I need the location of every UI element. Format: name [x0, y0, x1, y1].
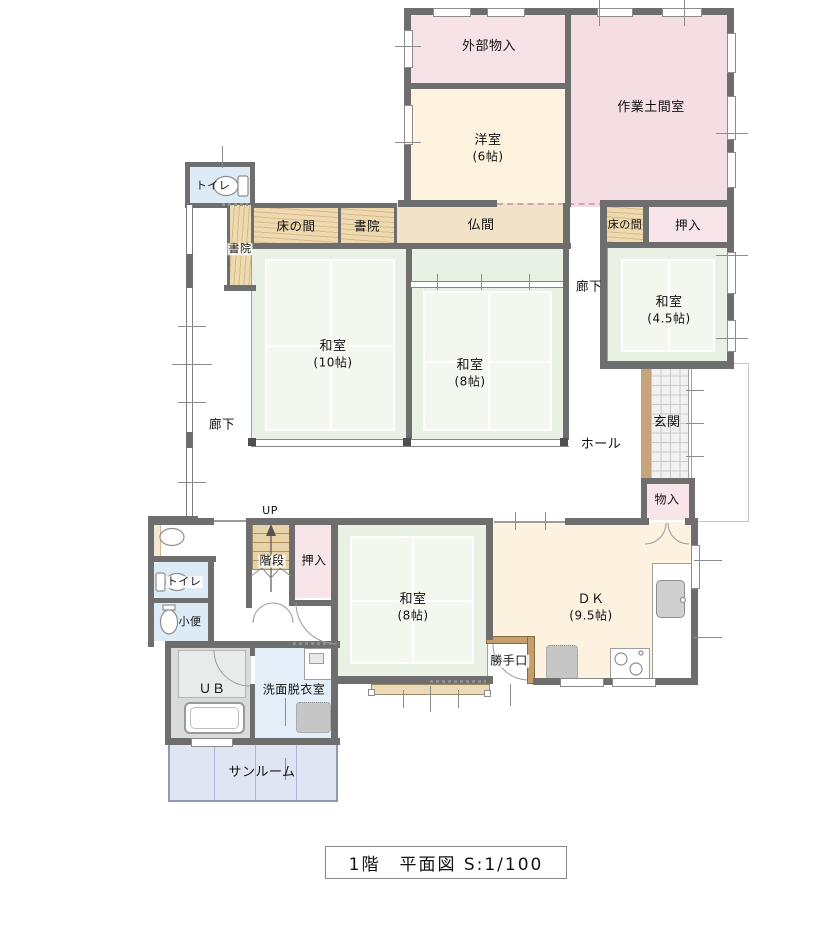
room-label-washitsu-8-center: 和室: [456, 359, 483, 373]
corridor-window-wall: [186, 205, 193, 518]
window: [560, 678, 604, 687]
dimension-tick: [430, 686, 431, 712]
caption-text: 1階 平面図 S:1/100: [349, 850, 544, 875]
window: [404, 105, 413, 145]
wall-segment: [406, 245, 412, 443]
dimension-tick: [395, 46, 421, 47]
wall-segment: [246, 518, 252, 608]
wall-segment: [641, 518, 649, 525]
dimension-tick: [716, 133, 748, 134]
dimension-tick: [716, 255, 748, 256]
room-label-ub: ＵＢ: [198, 683, 225, 697]
dimension-tick: [222, 146, 223, 168]
dimension-tick: [716, 338, 748, 339]
washbasin-bowl: [309, 653, 324, 664]
sliding-door-dots: [222, 203, 248, 206]
wall-segment: [404, 83, 571, 89]
entrance-porch: [690, 363, 749, 522]
room-size-western: (6帖): [473, 151, 504, 164]
room-label-toilet-lower: トイレ: [166, 576, 203, 588]
room-label-toilet-upper: トイレ: [196, 180, 231, 192]
dimension-tick: [529, 274, 530, 290]
room-washitsu-8-center: [409, 245, 566, 445]
dimension-tick: [437, 274, 438, 290]
dimension-tick: [458, 690, 459, 708]
dimension-tick: [515, 512, 516, 530]
wall-segment: [691, 518, 698, 685]
dimension-tick: [694, 637, 722, 638]
doma-boundary-dashed: [497, 203, 605, 205]
wall-segment: [600, 242, 734, 248]
opening-line: [494, 521, 565, 523]
wall-segment: [148, 598, 214, 603]
room-label-dk: ＤＫ: [577, 593, 604, 607]
wall-segment: [224, 285, 256, 291]
refrigerator: [546, 645, 578, 680]
wall-segment: [486, 518, 493, 640]
sliding-partition: [411, 281, 563, 288]
window: [727, 33, 736, 73]
wall-segment: [289, 600, 338, 606]
label-corridor-left: 廊下: [209, 417, 235, 430]
wall-segment: [250, 684, 255, 740]
room-label-oshiire-upper: 押入: [675, 218, 701, 231]
dimension-tick: [599, 0, 600, 26]
window: [727, 320, 736, 352]
room-label-work-room: 作業土間室: [617, 101, 685, 115]
window: [433, 8, 471, 17]
room-size-dk: (9.5帖): [569, 610, 612, 623]
door-swing-arc: [273, 603, 293, 623]
dimension-tick: [510, 684, 511, 706]
engawa-post: [484, 690, 491, 697]
wall-segment: [250, 648, 255, 656]
room-label-sunroom: サンルーム: [228, 766, 295, 780]
dimension-tick: [403, 690, 404, 708]
window: [727, 252, 736, 294]
opening-line: [214, 520, 246, 522]
sliding-door-dots: [293, 642, 331, 645]
wall-segment: [643, 205, 649, 247]
window: [191, 738, 233, 747]
entrance-edge-line: [688, 366, 692, 482]
dimension-tick: [686, 456, 704, 457]
dimension-tick: [481, 274, 482, 290]
room-label-washitsu-45: 和室: [655, 296, 682, 310]
dimension-tick: [178, 326, 206, 327]
window: [662, 8, 702, 17]
wall-segment: [289, 518, 295, 606]
room-label-oshiire-lower: 押入: [301, 555, 326, 568]
wall-segment: [565, 518, 645, 525]
window: [691, 545, 700, 589]
dimension-tick: [545, 512, 546, 530]
room-label-urinal: 小便: [179, 616, 202, 628]
wall-segment: [186, 432, 193, 448]
dimension-tick: [694, 560, 722, 561]
entrance-step-strip: [641, 366, 651, 482]
wall-segment: [600, 361, 734, 369]
room-label-tokonoma-right: 床の間: [608, 219, 643, 231]
room-label-stairs: 階段: [258, 555, 285, 568]
label-stairs-up: UP: [262, 505, 278, 517]
wall-segment: [186, 254, 193, 288]
wall-segment: [565, 8, 571, 207]
dimension-tick: [178, 482, 206, 483]
room-size-washitsu-45: (4.5帖): [647, 313, 690, 326]
room-label-shoin-side: 書院: [228, 243, 253, 255]
post: [560, 438, 568, 446]
wall-segment: [398, 200, 497, 207]
room-label-washroom: 洗面脱衣室: [263, 684, 326, 697]
room-label-butsuma: 仏間: [467, 219, 494, 233]
wall-segment: [148, 516, 154, 647]
window: [597, 8, 633, 17]
room-label-storage-small: 物入: [654, 494, 679, 507]
stove: [610, 648, 650, 680]
door-swing-arc: [253, 603, 273, 623]
tatami-mat: [423, 291, 552, 431]
dimension-tick: [395, 142, 421, 143]
kitchen-sink: [656, 580, 685, 618]
room-label-shoin-top: 書院: [354, 219, 380, 232]
dimension-tick: [686, 390, 704, 391]
sliding-door-dots: [430, 680, 486, 683]
room-label-tokonoma-left: 床の間: [276, 219, 315, 232]
window: [727, 152, 736, 188]
wall-segment: [563, 245, 569, 443]
wall-segment: [148, 516, 198, 522]
room-label-western: 洋室: [474, 134, 501, 148]
wall-segment: [246, 518, 492, 525]
room-label-washitsu-10: 和室: [319, 340, 346, 354]
dimension-tick: [178, 402, 206, 403]
room-label-exterior-storage: 外部物入: [462, 40, 516, 54]
floorplan-canvas: 外部物入 作業土間室 洋室 (6帖) トイレ 床の間 書院 書院 仏間 床の間 …: [0, 0, 840, 930]
dimension-tick: [686, 423, 704, 424]
washing-machine: [296, 702, 331, 733]
wall-segment: [148, 556, 216, 562]
dimension-tick: [285, 698, 286, 726]
wall-segment: [641, 478, 695, 484]
wall-segment: [563, 203, 570, 248]
bathtub-inner: [190, 707, 239, 729]
dimension-tick: [172, 364, 212, 365]
wall-segment: [600, 200, 734, 207]
room-label-kitchen-door: 勝手口: [489, 655, 529, 668]
room-size-washitsu-10: (10帖): [313, 357, 352, 370]
window: [612, 678, 656, 687]
room-label-washitsu-8-bottom: 和室: [399, 593, 426, 607]
caption-box: 1階 平面図 S:1/100: [325, 846, 567, 879]
engawa-post: [368, 689, 375, 696]
label-hall: ホール: [581, 438, 622, 452]
post: [248, 438, 256, 446]
window: [487, 8, 525, 17]
room-size-washitsu-8-bottom: (8帖): [398, 610, 429, 623]
dimension-tick: [684, 0, 685, 26]
wall-segment: [331, 641, 338, 745]
room-label-entrance: 玄関: [653, 416, 680, 430]
window: [404, 30, 413, 68]
wash-alcove-counter: [153, 522, 161, 558]
post: [403, 438, 411, 446]
room-size-washitsu-8-center: (8帖): [455, 376, 486, 389]
wall-segment: [165, 641, 171, 745]
label-corridor-right: 廊下: [576, 279, 602, 292]
